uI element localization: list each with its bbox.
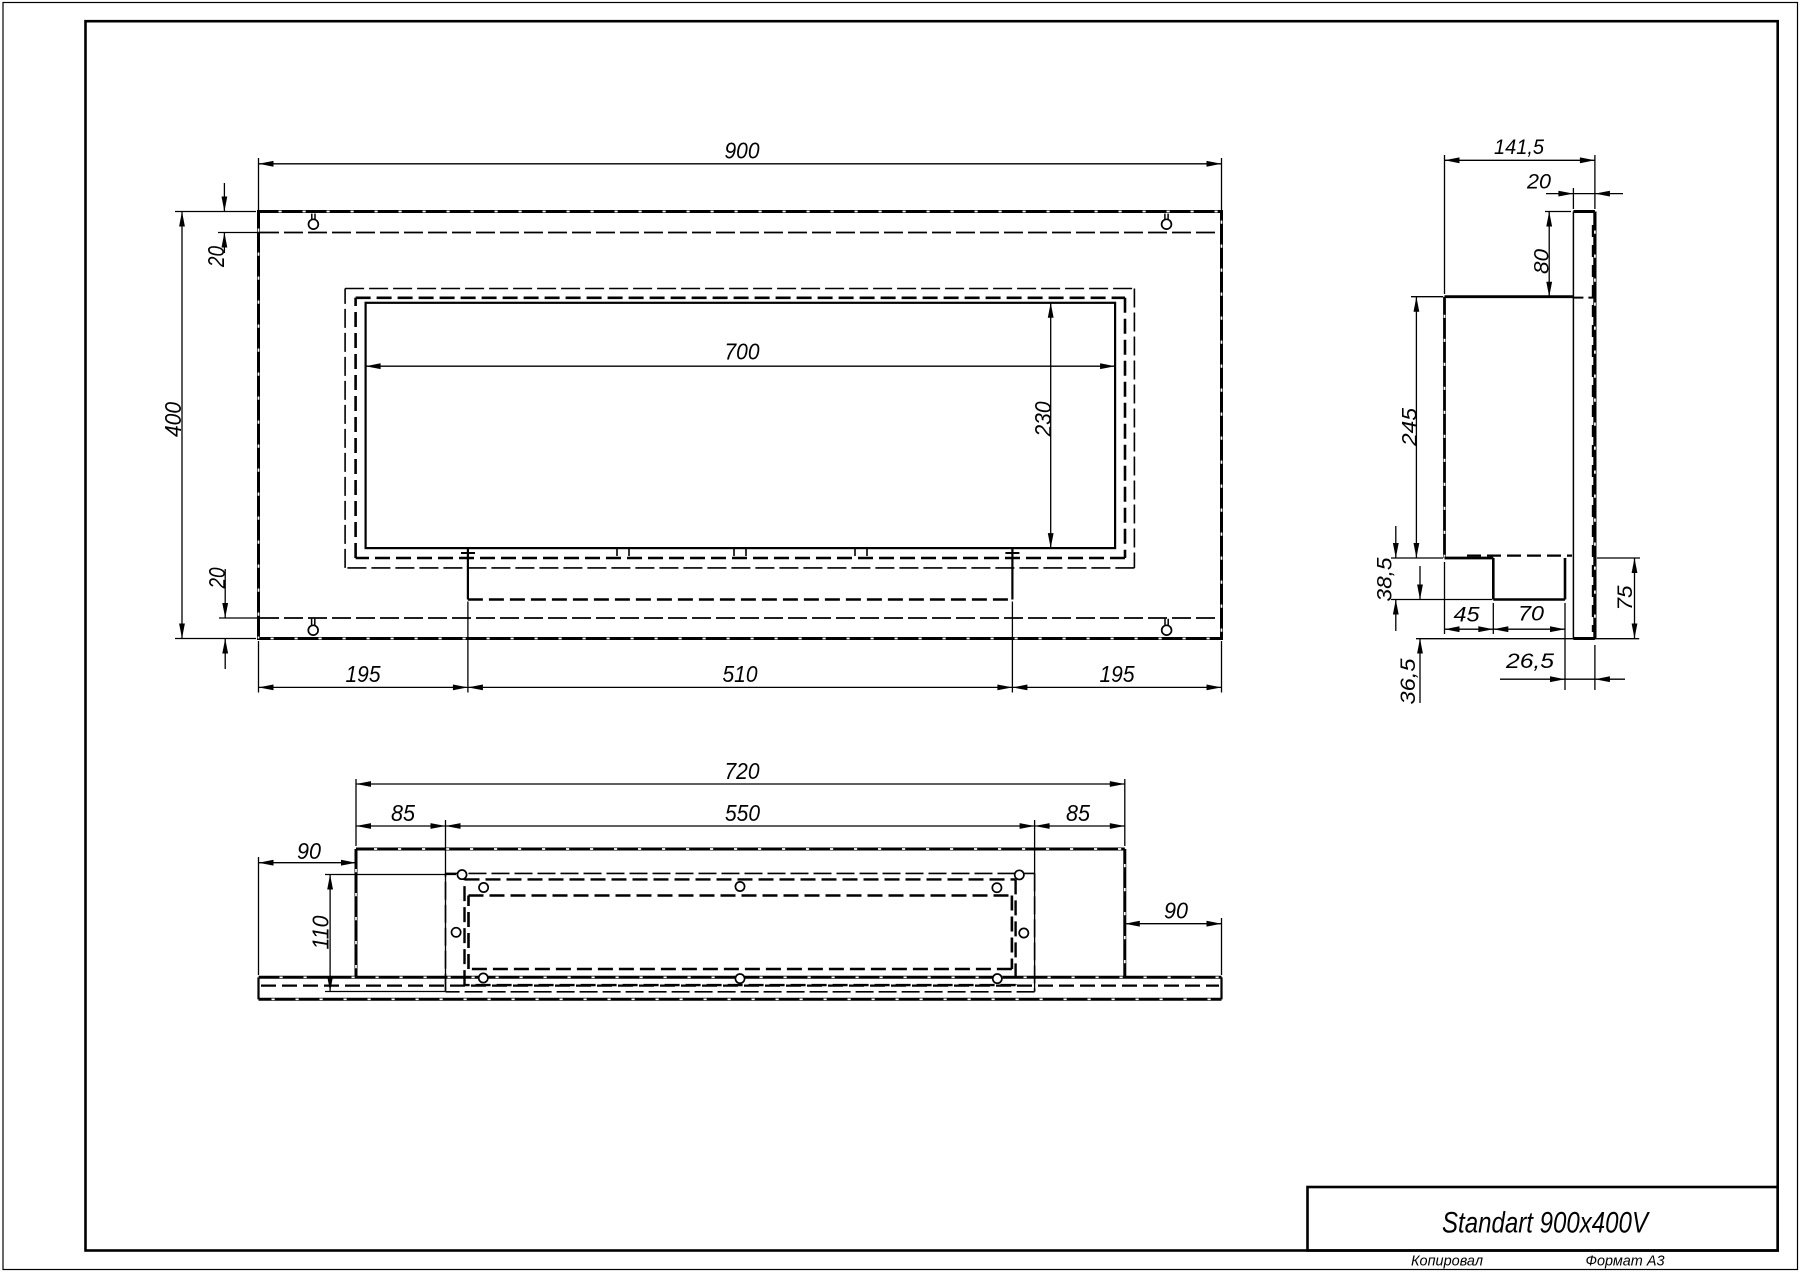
svg-text:400: 400 — [160, 402, 186, 437]
svg-text:195: 195 — [1100, 661, 1135, 687]
svg-text:80: 80 — [1531, 249, 1554, 274]
svg-text:720: 720 — [725, 758, 760, 784]
svg-text:36,5: 36,5 — [1397, 658, 1420, 704]
svg-text:20: 20 — [203, 246, 229, 268]
svg-text:Копировал: Копировал — [1411, 1254, 1483, 1270]
svg-text:141,5: 141,5 — [1494, 136, 1544, 159]
svg-text:90: 90 — [297, 838, 321, 864]
svg-text:900: 900 — [725, 138, 760, 164]
svg-text:230: 230 — [1030, 401, 1056, 437]
svg-text:110: 110 — [308, 915, 334, 949]
svg-text:45: 45 — [1454, 604, 1480, 627]
svg-text:510: 510 — [723, 661, 758, 687]
svg-text:20: 20 — [1526, 171, 1551, 194]
svg-text:38,5: 38,5 — [1374, 557, 1397, 601]
svg-text:20: 20 — [204, 567, 230, 589]
svg-text:Формат А3: Формат А3 — [1586, 1254, 1665, 1270]
svg-text:85: 85 — [391, 800, 415, 826]
svg-text:195: 195 — [346, 661, 381, 687]
svg-text:85: 85 — [1066, 800, 1090, 826]
svg-text:70: 70 — [1518, 603, 1544, 626]
svg-text:Standart 900x400V: Standart 900x400V — [1442, 1207, 1650, 1240]
svg-text:90: 90 — [1164, 898, 1188, 924]
svg-text:550: 550 — [725, 800, 760, 826]
svg-text:245: 245 — [1399, 408, 1422, 447]
svg-text:700: 700 — [725, 339, 760, 365]
svg-text:75: 75 — [1614, 585, 1637, 610]
svg-text:26,5: 26,5 — [1505, 650, 1555, 673]
